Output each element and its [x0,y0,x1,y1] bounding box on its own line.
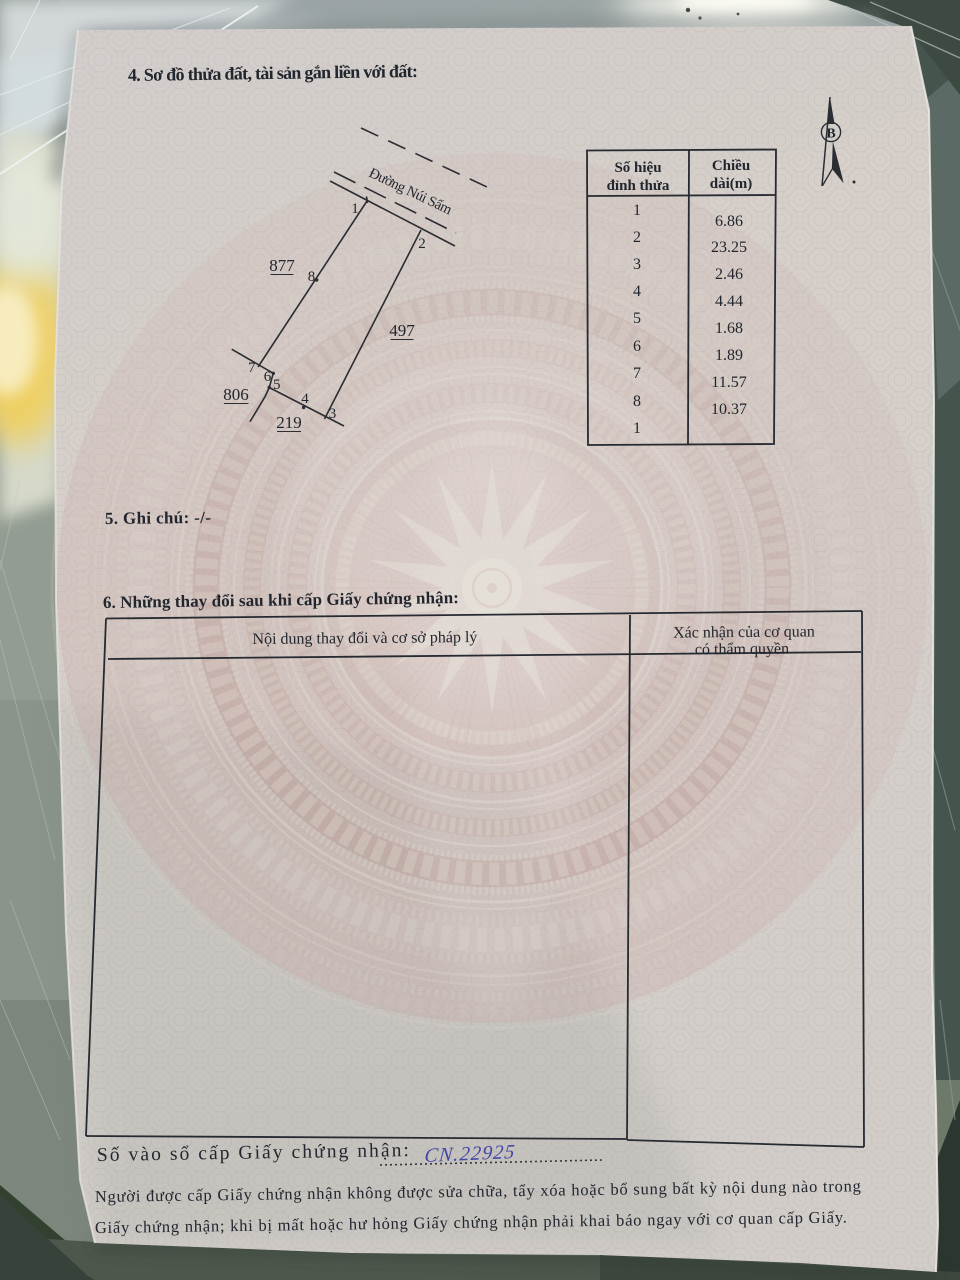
svg-text:CN.22925: CN.22925 [424,1141,517,1167]
svg-text:Số hiệu: Số hiệu [614,160,661,176]
svg-text:B: B [826,127,835,142]
svg-text:2: 2 [418,236,426,252]
svg-text:1: 1 [633,420,641,437]
svg-text:4.44: 4.44 [715,293,743,310]
svg-text:6: 6 [264,369,272,385]
svg-text:đỉnh thửa: đỉnh thửa [607,178,670,194]
svg-text:23.25: 23.25 [711,239,747,256]
svg-text:1.89: 1.89 [715,347,743,364]
svg-text:806: 806 [223,385,249,404]
svg-text:877: 877 [269,256,295,275]
svg-text:8: 8 [633,393,641,410]
svg-text:2.46: 2.46 [715,266,743,283]
svg-text:1: 1 [633,202,641,219]
svg-text:Nội dung thay đổi và cơ sở phá: Nội dung thay đổi và cơ sở pháp lý [252,629,477,648]
svg-text:5: 5 [273,377,281,393]
svg-text:497: 497 [389,321,415,340]
svg-text:6: 6 [633,338,641,355]
svg-text:8: 8 [308,269,316,285]
svg-text:219: 219 [276,413,302,432]
svg-text:Chiều: Chiều [712,158,750,174]
svg-text:6.86: 6.86 [715,213,743,230]
svg-text:4: 4 [301,391,309,407]
svg-text:7: 7 [633,365,641,382]
svg-text:có thẩm quyền: có thẩm quyền [695,641,789,659]
svg-text:7: 7 [248,360,256,376]
svg-text:3: 3 [633,256,641,273]
svg-text:4: 4 [633,283,641,300]
svg-text:1.68: 1.68 [715,320,743,337]
svg-text:2: 2 [633,229,641,246]
svg-text:10.37: 10.37 [711,401,747,418]
svg-text:dài(m): dài(m) [710,176,753,192]
svg-text:4. Sơ đồ thửa đất, tài sản gắn: 4. Sơ đồ thửa đất, tài sản gắn liền với … [128,61,418,85]
svg-text:5: 5 [633,310,641,327]
svg-text:Xác nhận của cơ quan: Xác nhận của cơ quan [673,623,815,641]
svg-text:3: 3 [329,406,337,422]
svg-text:11.57: 11.57 [711,374,746,391]
svg-text:5. Ghi chú: -/-: 5. Ghi chú: -/- [105,508,212,528]
svg-text:1: 1 [351,201,359,217]
